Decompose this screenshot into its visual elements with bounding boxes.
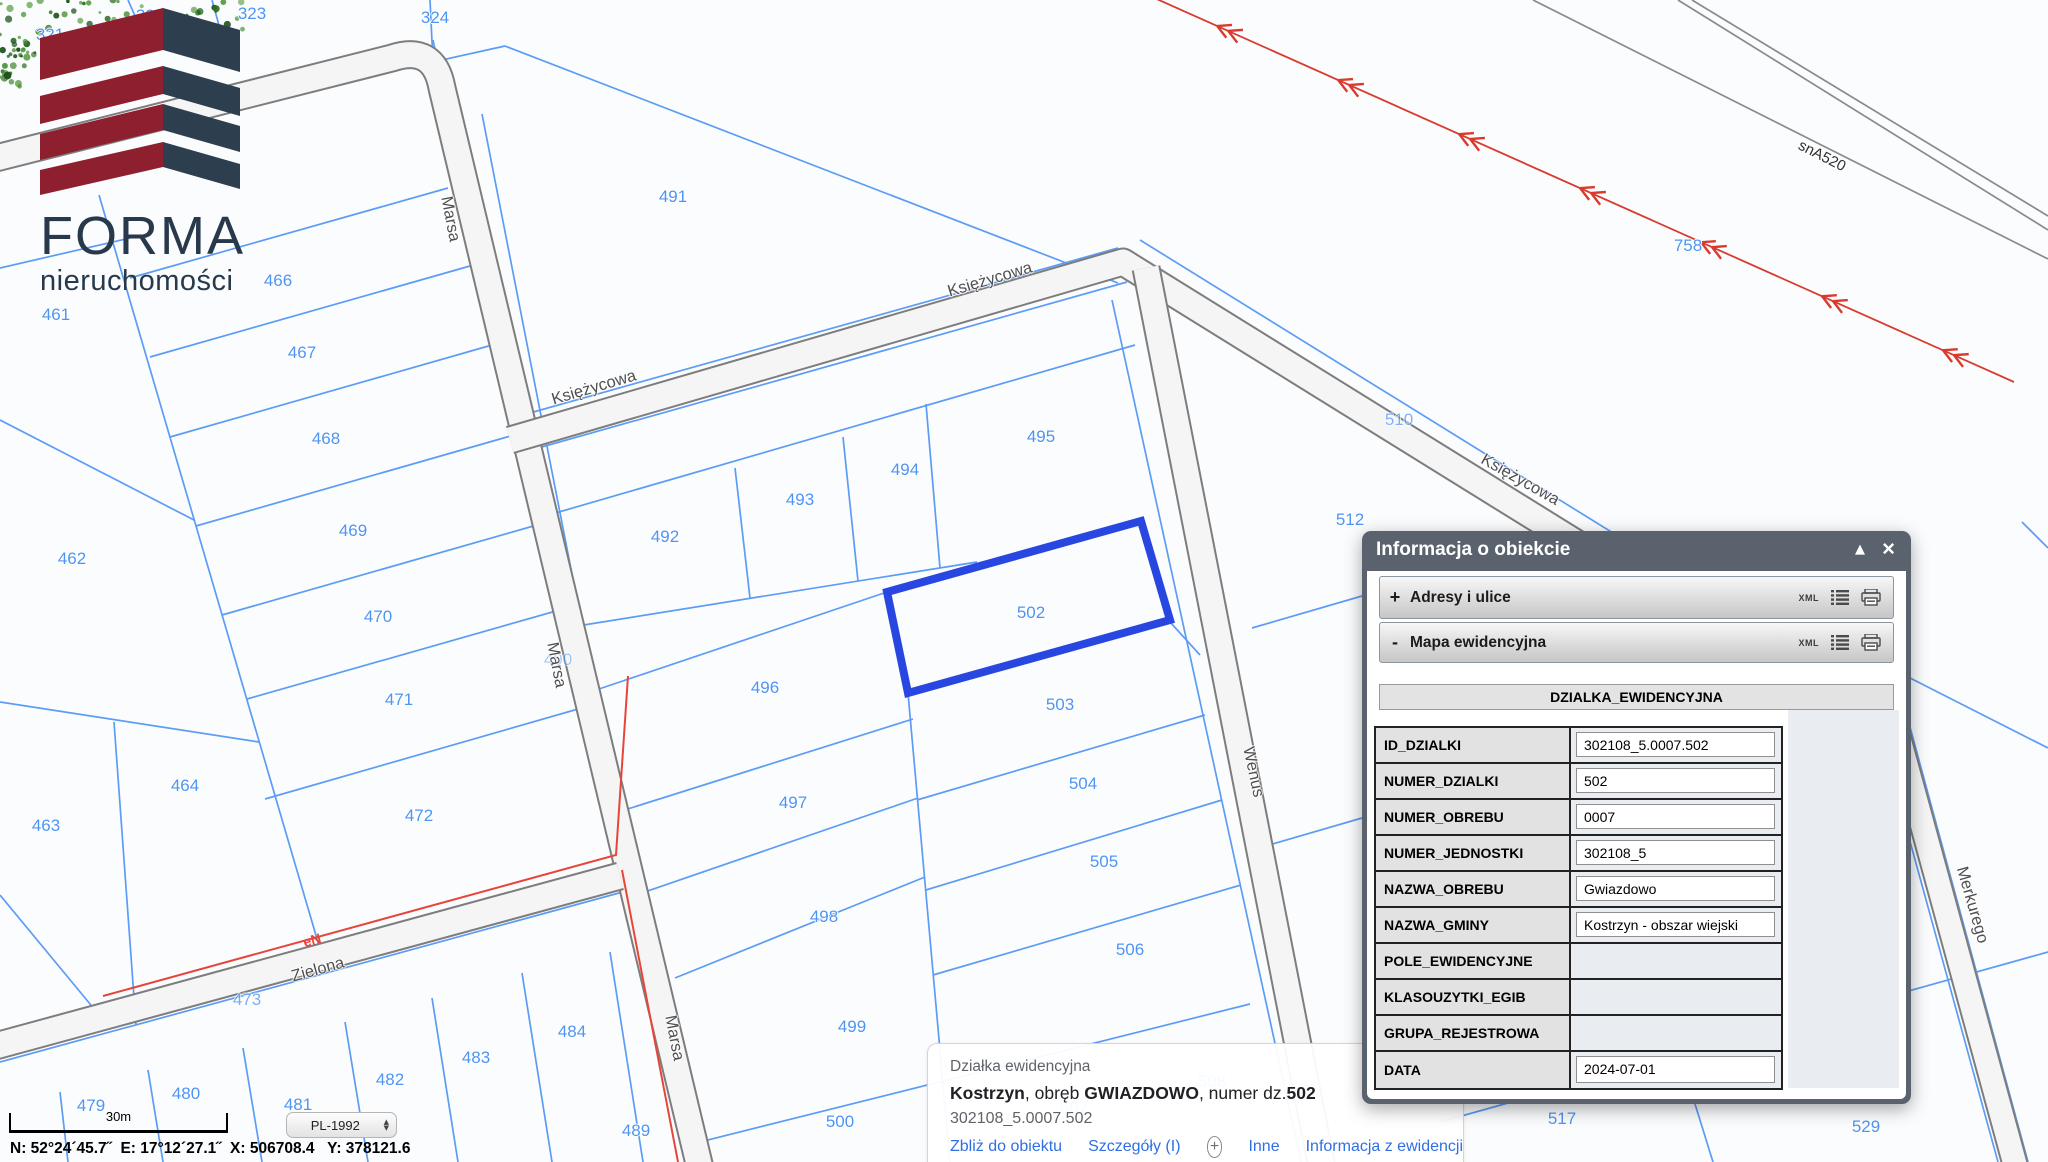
- map-application: 3213223233244914664614674684694624704714…: [0, 0, 2048, 1162]
- table-row: NAZWA_GMINYKostrzyn - obszar wiejski: [1376, 908, 1781, 944]
- attr-value-cell: Gwiazdowo: [1571, 872, 1781, 908]
- collapse-section-icon[interactable]: -: [1380, 632, 1410, 653]
- attr-name: NUMER_DZIALKI: [1376, 764, 1571, 800]
- power-line-arrows: [1214, 20, 1968, 367]
- expand-icon[interactable]: +: [1380, 587, 1410, 608]
- scale-bar: 30m: [9, 1113, 228, 1133]
- list-icon[interactable]: [1831, 635, 1849, 650]
- attr-value-cell: 302108_5.0007.502: [1571, 728, 1781, 764]
- section-label: Adresy i ulice: [1410, 589, 1511, 607]
- table-row: NAZWA_OBREBUGwiazdowo: [1376, 872, 1781, 908]
- collapse-icon[interactable]: ▲: [1855, 542, 1865, 557]
- attr-name: POLE_EWIDENCYJNE: [1376, 944, 1571, 980]
- panel-title: Informacja o obiekcie: [1376, 539, 1570, 561]
- popup-action-link[interactable]: Zbliż do obiektu: [950, 1138, 1062, 1156]
- attr-name: NAZWA_GMINY: [1376, 908, 1571, 944]
- panel-content: + Adresy i ulice XML: [1367, 571, 1906, 1099]
- table-row: NUMER_OBREBU0007: [1376, 800, 1781, 836]
- attr-name: DATA: [1376, 1052, 1571, 1088]
- panel-right-strip: [1788, 710, 1899, 1088]
- attr-value-cell: 502: [1571, 764, 1781, 800]
- attr-value: Kostrzyn - obszar wiejski: [1576, 912, 1775, 937]
- attr-name: GRUPA_REJESTROWA: [1376, 1016, 1571, 1052]
- section-adresy-i-ulice[interactable]: + Adresy i ulice XML: [1379, 576, 1894, 619]
- logo-building-icon: [40, 8, 242, 198]
- attribute-table: ID_DZIALKI302108_5.0007.502NUMER_DZIALKI…: [1374, 726, 1783, 1090]
- attr-value-cell: [1571, 1016, 1781, 1052]
- attr-name: NAZWA_OBREBU: [1376, 872, 1571, 908]
- attr-value: 302108_5.0007.502: [1576, 732, 1775, 757]
- table-row: NUMER_JEDNOSTKI302108_5: [1376, 836, 1781, 872]
- close-icon[interactable]: ×: [1882, 536, 1895, 562]
- popup-action-link[interactable]: Informacja z ewidencji: [1306, 1138, 1463, 1156]
- popup-action-link[interactable]: Szczegóły (I): [1088, 1138, 1180, 1156]
- crs-select[interactable]: PL-1992 ▲▼: [286, 1112, 397, 1138]
- crs-value: PL-1992: [287, 1118, 384, 1133]
- table-row: ID_DZIALKI302108_5.0007.502: [1376, 728, 1781, 764]
- utility-lines: [1533, 0, 2048, 259]
- section-mapa-ewidencyjna[interactable]: - Mapa ewidencyjna XML: [1379, 622, 1894, 663]
- attr-value-cell: [1571, 980, 1781, 1016]
- attr-value-cell: [1571, 944, 1781, 980]
- attr-value: Gwiazdowo: [1576, 876, 1775, 901]
- coordinates-readout: N: 52°24´45.7˝ E: 17°12´27.1˝ X: 506708.…: [10, 1140, 410, 1158]
- table-row: GRUPA_REJESTROWA: [1376, 1016, 1781, 1052]
- attr-name: KLASOUZYTKI_EGIB: [1376, 980, 1571, 1016]
- attr-name: NUMER_OBREBU: [1376, 800, 1571, 836]
- popup-action-link[interactable]: Inne: [1248, 1138, 1279, 1156]
- attr-name: NUMER_JEDNOSTKI: [1376, 836, 1571, 872]
- zoom-plus-icon[interactable]: +: [1207, 1136, 1223, 1158]
- object-info-panel: Informacja o obiekcie ▲ × + Adresy i uli…: [1362, 531, 1911, 1104]
- feature-id: 302108_5.0007.502: [950, 1110, 1463, 1128]
- xml-button[interactable]: XML: [1799, 638, 1820, 648]
- attr-value-cell: 2024-07-01: [1571, 1052, 1781, 1088]
- print-icon[interactable]: [1861, 634, 1881, 651]
- attr-value-cell: 0007: [1571, 800, 1781, 836]
- scale-label: 30m: [11, 1109, 226, 1124]
- table-row: POLE_EWIDENCYJNE: [1376, 944, 1781, 980]
- attr-value: 2024-07-01: [1576, 1056, 1775, 1083]
- table-row: NUMER_DZIALKI502: [1376, 764, 1781, 800]
- attr-value-cell: 302108_5: [1571, 836, 1781, 872]
- attr-value-cell: Kostrzyn - obszar wiejski: [1571, 908, 1781, 944]
- highlighted-parcel-outline[interactable]: [887, 521, 1170, 693]
- logo: FORMA nieruchomości: [40, 8, 270, 296]
- attr-value: 0007: [1576, 804, 1775, 829]
- feature-actions: Zbliż do obiektuSzczegóły (I)+InneInform…: [950, 1136, 1463, 1158]
- logo-subtitle: nieruchomości: [40, 267, 270, 296]
- table-row: KLASOUZYTKI_EGIB: [1376, 980, 1781, 1016]
- section-label: Mapa ewidencyjna: [1410, 634, 1546, 652]
- table-row: DATA2024-07-01: [1376, 1052, 1781, 1088]
- attribute-table-header: DZIALKA_EWIDENCYJNA: [1379, 684, 1894, 710]
- print-icon[interactable]: [1861, 589, 1881, 606]
- attr-value: 502: [1576, 768, 1775, 793]
- attr-name: ID_DZIALKI: [1376, 728, 1571, 764]
- list-icon[interactable]: [1831, 590, 1849, 605]
- xml-button[interactable]: XML: [1799, 593, 1820, 603]
- logo-title: FORMA: [40, 209, 270, 263]
- attr-value: 302108_5: [1576, 840, 1775, 865]
- crs-stepper-icon[interactable]: ▲▼: [384, 1119, 396, 1131]
